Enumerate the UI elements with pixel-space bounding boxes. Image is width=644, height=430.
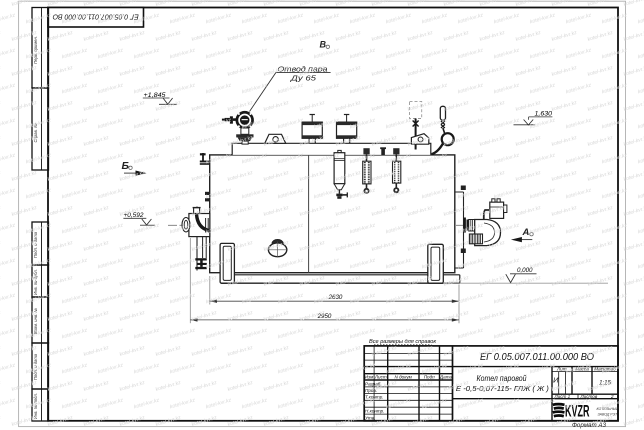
svg-text:Формат А3: Формат А3: [572, 422, 606, 429]
